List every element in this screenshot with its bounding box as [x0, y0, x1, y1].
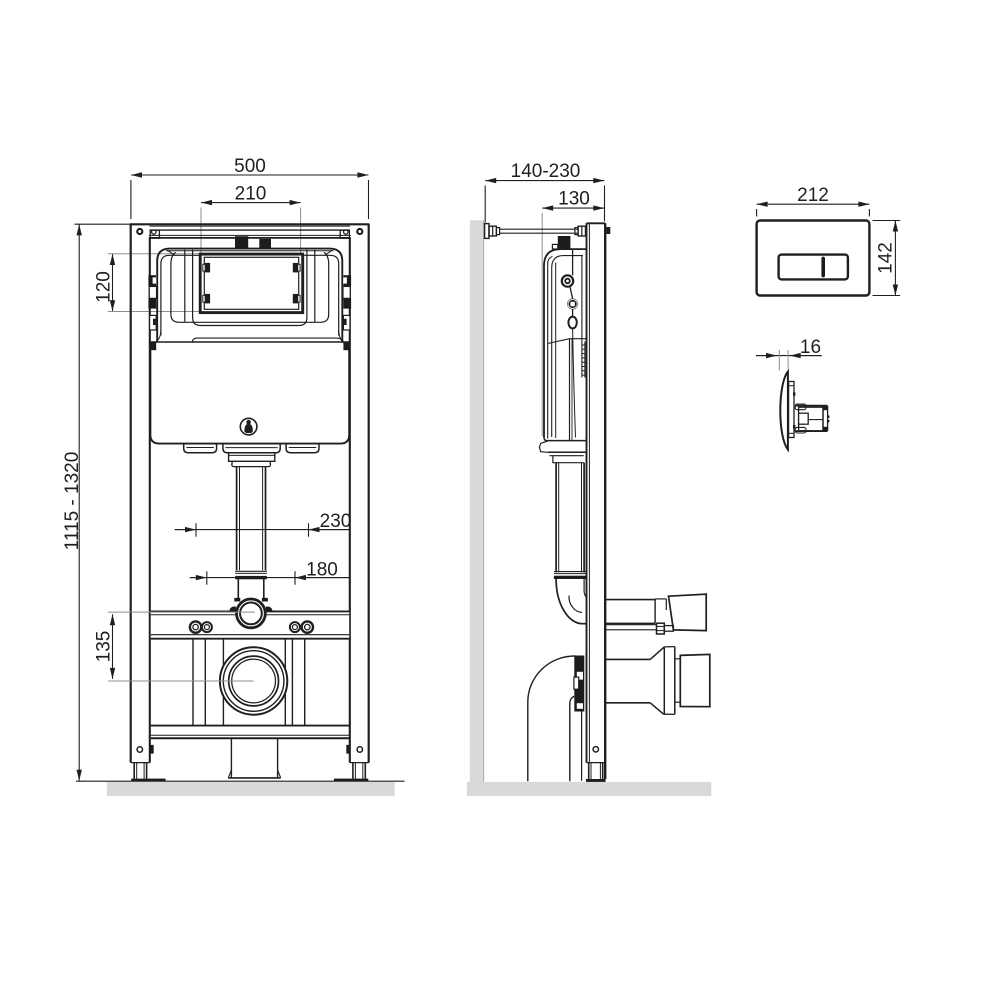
svg-text:1115 - 1320: 1115 - 1320	[62, 452, 83, 551]
svg-text:210: 210	[235, 184, 267, 205]
svg-text:130: 130	[558, 189, 590, 210]
svg-text:500: 500	[234, 156, 266, 177]
svg-text:142: 142	[875, 242, 896, 274]
svg-text:120: 120	[94, 271, 115, 303]
svg-text:180: 180	[306, 560, 338, 581]
svg-text:230: 230	[320, 511, 352, 532]
svg-text:140-230: 140-230	[511, 161, 581, 182]
svg-text:212: 212	[797, 185, 829, 206]
svg-text:16: 16	[800, 337, 821, 358]
svg-text:135: 135	[93, 631, 114, 663]
